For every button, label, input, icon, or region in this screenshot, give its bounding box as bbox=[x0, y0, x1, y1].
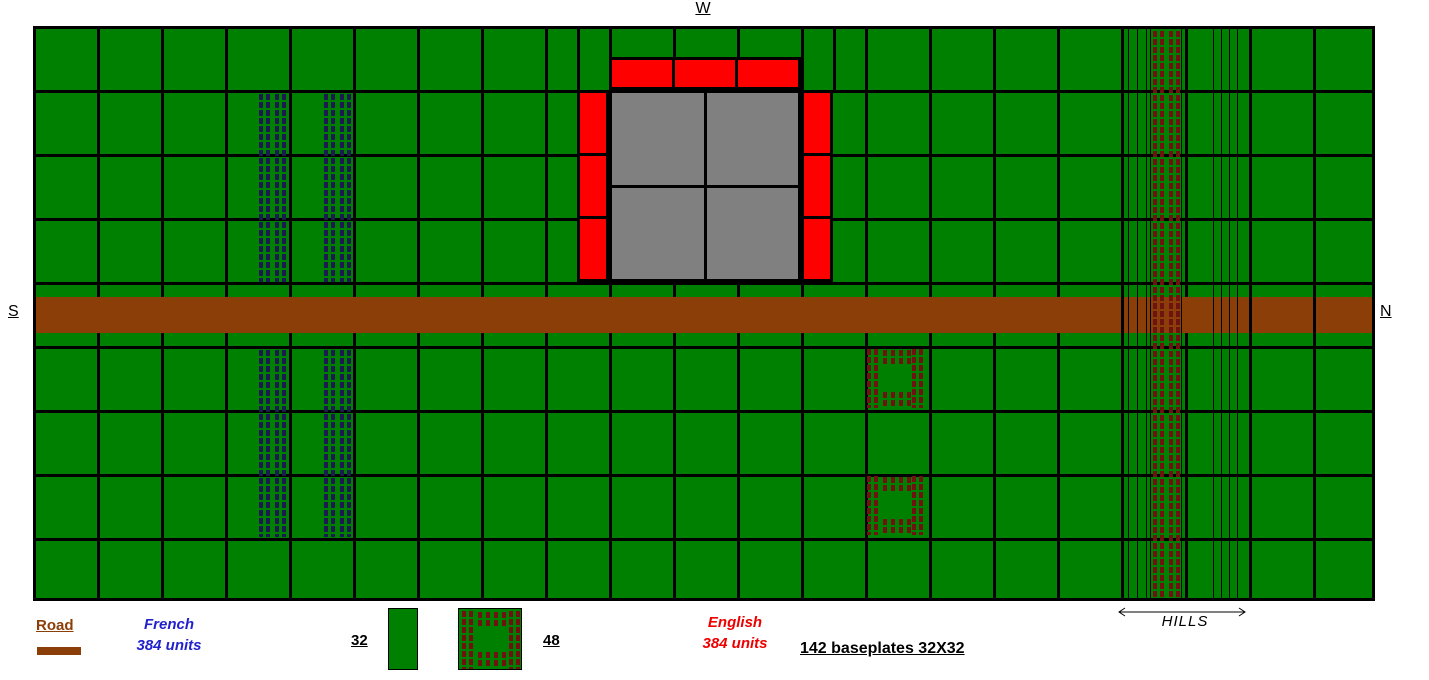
english-square-formation bbox=[866, 475, 925, 535]
hills-grid-line bbox=[1249, 29, 1252, 598]
wall-segment bbox=[675, 60, 735, 87]
grid-line-crossing-road bbox=[1313, 29, 1316, 598]
square-formation-key-plate bbox=[458, 608, 522, 670]
hills-contour-line bbox=[1213, 29, 1214, 598]
wall-segment bbox=[738, 60, 798, 87]
french-column-formation bbox=[257, 92, 287, 282]
castle-right-split-line bbox=[833, 29, 836, 90]
wall-segment bbox=[580, 219, 606, 279]
french-column-formation bbox=[322, 348, 352, 537]
road-legend-label: Road bbox=[36, 617, 74, 634]
hills-contour-line bbox=[1137, 29, 1138, 598]
keep-block bbox=[612, 188, 704, 280]
english-square-formation bbox=[866, 348, 925, 408]
formation-32-label: 32 bbox=[351, 632, 368, 649]
wall-segment bbox=[580, 156, 606, 216]
formation-rear-rank bbox=[478, 651, 508, 666]
english-unit-count: 384 units bbox=[680, 633, 790, 654]
english-army-legend: English 384 units bbox=[680, 612, 790, 654]
hills-grid-line bbox=[1121, 29, 1124, 598]
column-formation-key-plate bbox=[388, 608, 418, 670]
hills-contour-line bbox=[1128, 29, 1129, 598]
keep-block bbox=[707, 188, 799, 280]
castle-left-split-line bbox=[577, 29, 580, 90]
wall-segment bbox=[804, 93, 830, 153]
wall-segment bbox=[580, 93, 606, 153]
wall-segment bbox=[804, 219, 830, 279]
french-unit-count: 384 units bbox=[114, 635, 224, 656]
formation-rear-rank bbox=[883, 518, 913, 533]
english-hill-column-formation bbox=[1150, 29, 1182, 598]
castle-keep bbox=[609, 90, 801, 282]
formation-front-rank bbox=[883, 476, 913, 491]
keep-block bbox=[707, 93, 799, 185]
french-army-legend: French 384 units bbox=[114, 614, 224, 656]
castle-east-wall bbox=[801, 90, 833, 282]
compass-south-label: S bbox=[8, 303, 19, 321]
hills-contour-line bbox=[1221, 29, 1222, 598]
battlefield-diagram: W S N bbox=[0, 0, 1429, 680]
wall-segment bbox=[612, 60, 672, 87]
compass-west-label: W bbox=[653, 0, 753, 18]
castle-west-wall bbox=[577, 90, 609, 282]
castle-north-wall bbox=[609, 57, 801, 90]
english-name: English bbox=[680, 612, 790, 633]
french-name: French bbox=[114, 614, 224, 635]
compass-north-label: N bbox=[1380, 303, 1392, 321]
wall-segment bbox=[804, 156, 830, 216]
french-column-formation bbox=[322, 92, 352, 282]
formation-front-rank bbox=[478, 611, 508, 626]
hills-contour-line bbox=[1146, 29, 1147, 598]
hills-contour-line bbox=[1237, 29, 1238, 598]
french-column-formation bbox=[257, 348, 287, 537]
hills-label: HILLS bbox=[1125, 613, 1245, 630]
baseplates-note: 142 baseplates 32X32 bbox=[800, 640, 965, 658]
hills-contour-line bbox=[1229, 29, 1230, 598]
formation-48-label: 48 bbox=[543, 632, 560, 649]
keep-block bbox=[612, 93, 704, 185]
road-legend-swatch bbox=[37, 647, 81, 655]
formation-rear-rank bbox=[883, 391, 913, 406]
formation-front-rank bbox=[883, 349, 913, 364]
